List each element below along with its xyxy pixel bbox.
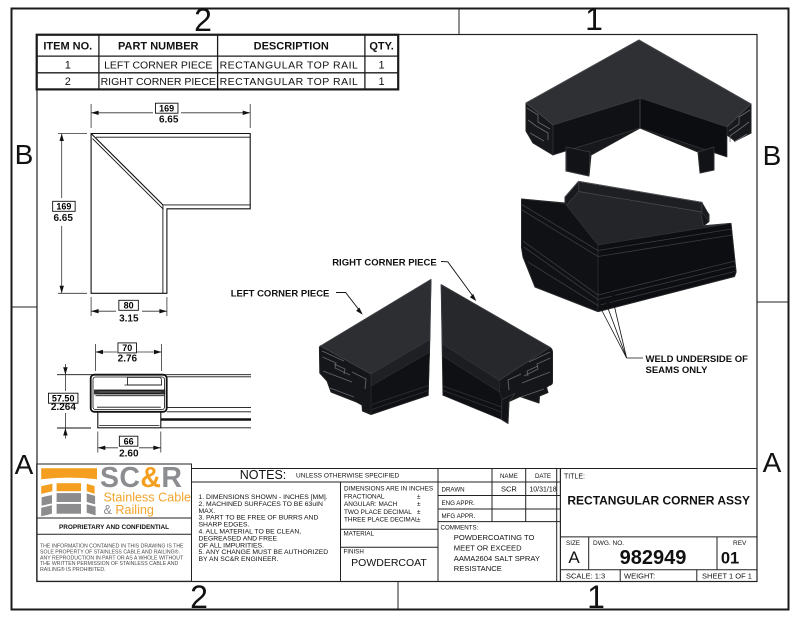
svg-text:RECTANGULAR CORNER ASSY: RECTANGULAR CORNER ASSY [567,494,750,508]
svg-text:LEFT CORNER PIECE: LEFT CORNER PIECE [104,59,212,71]
svg-text:80: 80 [124,301,134,311]
svg-text:01: 01 [721,550,739,568]
svg-text:2.76: 2.76 [118,354,138,365]
svg-text:982949: 982949 [620,547,687,569]
svg-text:2: 2 [194,2,212,38]
svg-text:MFG APPR.: MFG APPR. [442,513,476,520]
svg-text:2: 2 [65,76,71,88]
svg-text:DRAWN: DRAWN [442,487,465,494]
svg-text:SIZE: SIZE [566,540,580,547]
svg-text:AAMA2604 SALT SPRAY: AAMA2604 SALT SPRAY [454,554,540,563]
svg-text:1: 1 [378,59,384,71]
svg-text:POWDERCOAT: POWDERCOAT [351,557,427,569]
svg-text:6.65: 6.65 [159,115,179,126]
svg-text:A: A [568,548,580,567]
svg-text:±: ± [417,517,421,524]
svg-text:FRACTIONAL: FRACTIONAL [344,493,385,500]
svg-text:POWDERCOATING TO: POWDERCOATING TO [454,533,535,542]
svg-text:& Railing: & Railing [104,503,154,517]
svg-text:66: 66 [124,436,134,446]
svg-text:6.65: 6.65 [53,213,73,224]
svg-text:FINISH: FINISH [344,549,364,556]
svg-text:TWO PLACE DECIMAL: TWO PLACE DECIMAL [344,509,412,516]
svg-text:LEFT CORNER PIECE: LEFT CORNER PIECE [231,289,330,300]
svg-text:REV: REV [733,540,747,547]
svg-text:2. MACHINED SURFACES TO BE 63u: 2. MACHINED SURFACES TO BE 63uIN [199,501,323,508]
svg-text:PART NUMBER: PART NUMBER [118,41,199,53]
svg-text:3.15: 3.15 [119,313,139,324]
svg-text:DIMENSIONS ARE IN INCHES: DIMENSIONS ARE IN INCHES [344,486,433,493]
svg-text:±: ± [417,509,421,516]
svg-text:70: 70 [122,343,132,353]
svg-text:169: 169 [159,103,174,113]
svg-text:DWG. NO.: DWG. NO. [593,540,624,547]
svg-text:WELD UNDERSIDE OF: WELD UNDERSIDE OF [646,354,749,365]
svg-text:DESCRIPTION: DESCRIPTION [254,41,329,53]
svg-text:QTY.: QTY. [369,41,393,53]
svg-text:RIGHT CORNER PIECE: RIGHT CORNER PIECE [332,257,437,268]
svg-text:1: 1 [585,1,603,37]
svg-text:B: B [15,139,34,170]
svg-text:COMMENTS:: COMMENTS: [441,525,479,532]
svg-text:ENG APPR.: ENG APPR. [442,500,476,507]
svg-text:SEAMS ONLY: SEAMS ONLY [646,365,709,376]
svg-text:RAILING® IS PROHIBITED.: RAILING® IS PROHIBITED. [40,566,106,573]
svg-text:NOTES:: NOTES: [240,468,287,482]
svg-text:NAME: NAME [500,473,518,480]
svg-text:B: B [763,140,782,171]
svg-text:TITLE:: TITLE: [564,474,585,481]
svg-text:PROPRIETARY AND CONFIDENTIAL: PROPRIETARY AND CONFIDENTIAL [59,524,169,531]
svg-text:RECTANGULAR TOP RAIL: RECTANGULAR TOP RAIL [220,59,359,71]
svg-text:ITEM NO.: ITEM NO. [43,41,92,53]
svg-text:10/31/18: 10/31/18 [529,487,556,494]
svg-text:A: A [15,449,34,480]
svg-text:±: ± [417,501,421,508]
svg-text:THREE PLACE DECIMAL: THREE PLACE DECIMAL [344,517,419,524]
svg-text:1: 1 [65,59,71,71]
svg-text:SC&R: SC&R [100,462,182,494]
svg-text:2: 2 [190,579,208,615]
svg-text:BY AN SC&R ENGINEER.: BY AN SC&R ENGINEER. [199,556,279,563]
svg-text:1: 1 [587,579,605,615]
svg-text:ANGULAR: MACH: ANGULAR: MACH [344,501,398,508]
svg-text:2.264: 2.264 [51,402,76,413]
svg-text:169: 169 [56,202,71,212]
svg-text:RIGHT CORNER PIECE: RIGHT CORNER PIECE [101,76,216,88]
svg-text:UNLESS OTHERWISE SPECIFIED: UNLESS OTHERWISE SPECIFIED [296,473,399,480]
svg-text:SCR: SCR [501,485,517,494]
svg-text:RESISTANCE: RESISTANCE [454,564,502,573]
svg-text:WEIGHT:: WEIGHT: [624,572,655,581]
svg-text:MEET OR EXCEED: MEET OR EXCEED [454,543,522,552]
svg-text:A: A [763,447,782,478]
svg-text:RECTANGULAR TOP RAIL: RECTANGULAR TOP RAIL [220,76,359,88]
svg-text:2.60: 2.60 [119,448,139,459]
svg-text:SCALE: 1:3: SCALE: 1:3 [566,572,605,581]
svg-text:SHEET 1 OF 1: SHEET 1 OF 1 [702,572,752,581]
svg-text:DATE: DATE [535,473,551,480]
svg-text:±: ± [417,493,421,500]
svg-text:MATERIAL: MATERIAL [344,531,375,538]
svg-text:1: 1 [378,76,384,88]
